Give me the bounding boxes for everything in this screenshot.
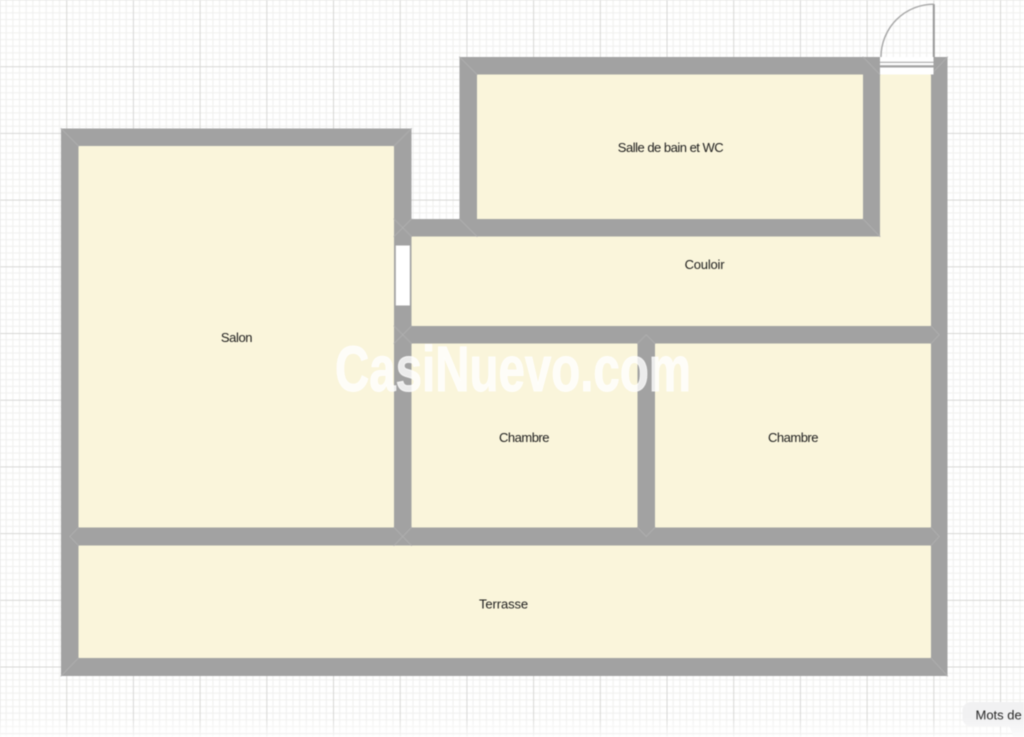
- svg-text:Salle de bain et WC: Salle de bain et WC: [618, 140, 724, 155]
- svg-text:Couloir: Couloir: [685, 257, 726, 272]
- svg-text:CasiNuevo.com: CasiNuevo.com: [335, 333, 691, 405]
- svg-text:Terrasse: Terrasse: [479, 597, 528, 612]
- svg-text:Chambre: Chambre: [768, 430, 818, 445]
- svg-text:Chambre: Chambre: [499, 430, 549, 445]
- svg-text:Salon: Salon: [221, 330, 252, 345]
